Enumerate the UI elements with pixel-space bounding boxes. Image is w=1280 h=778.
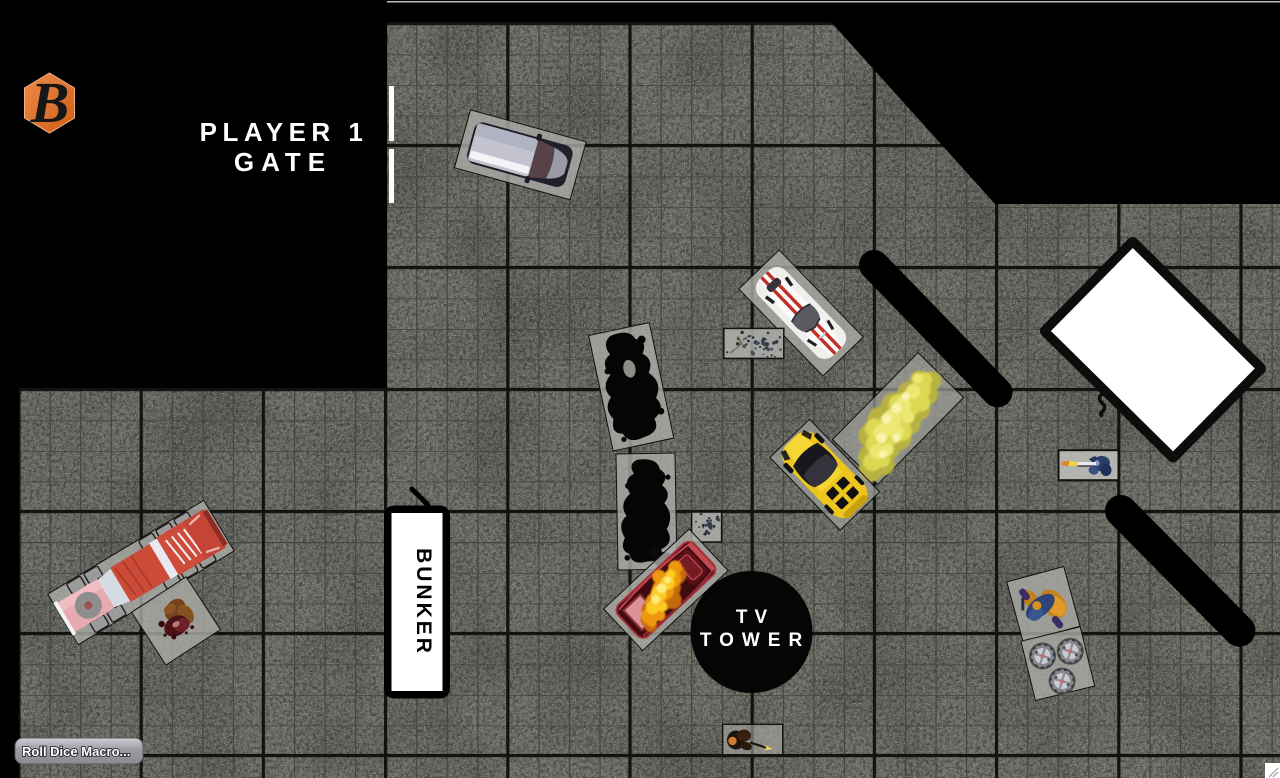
svg-text:Roll Dice Macro...: Roll Dice Macro...: [22, 744, 130, 759]
svg-text:GATE: GATE: [234, 147, 332, 177]
svg-text:TV: TV: [736, 607, 774, 628]
svg-text:BUNKER: BUNKER: [412, 548, 435, 656]
svg-text:B: B: [30, 70, 70, 135]
svg-text:PLAYER 1: PLAYER 1: [200, 117, 369, 147]
svg-text:TOWER: TOWER: [700, 630, 810, 651]
